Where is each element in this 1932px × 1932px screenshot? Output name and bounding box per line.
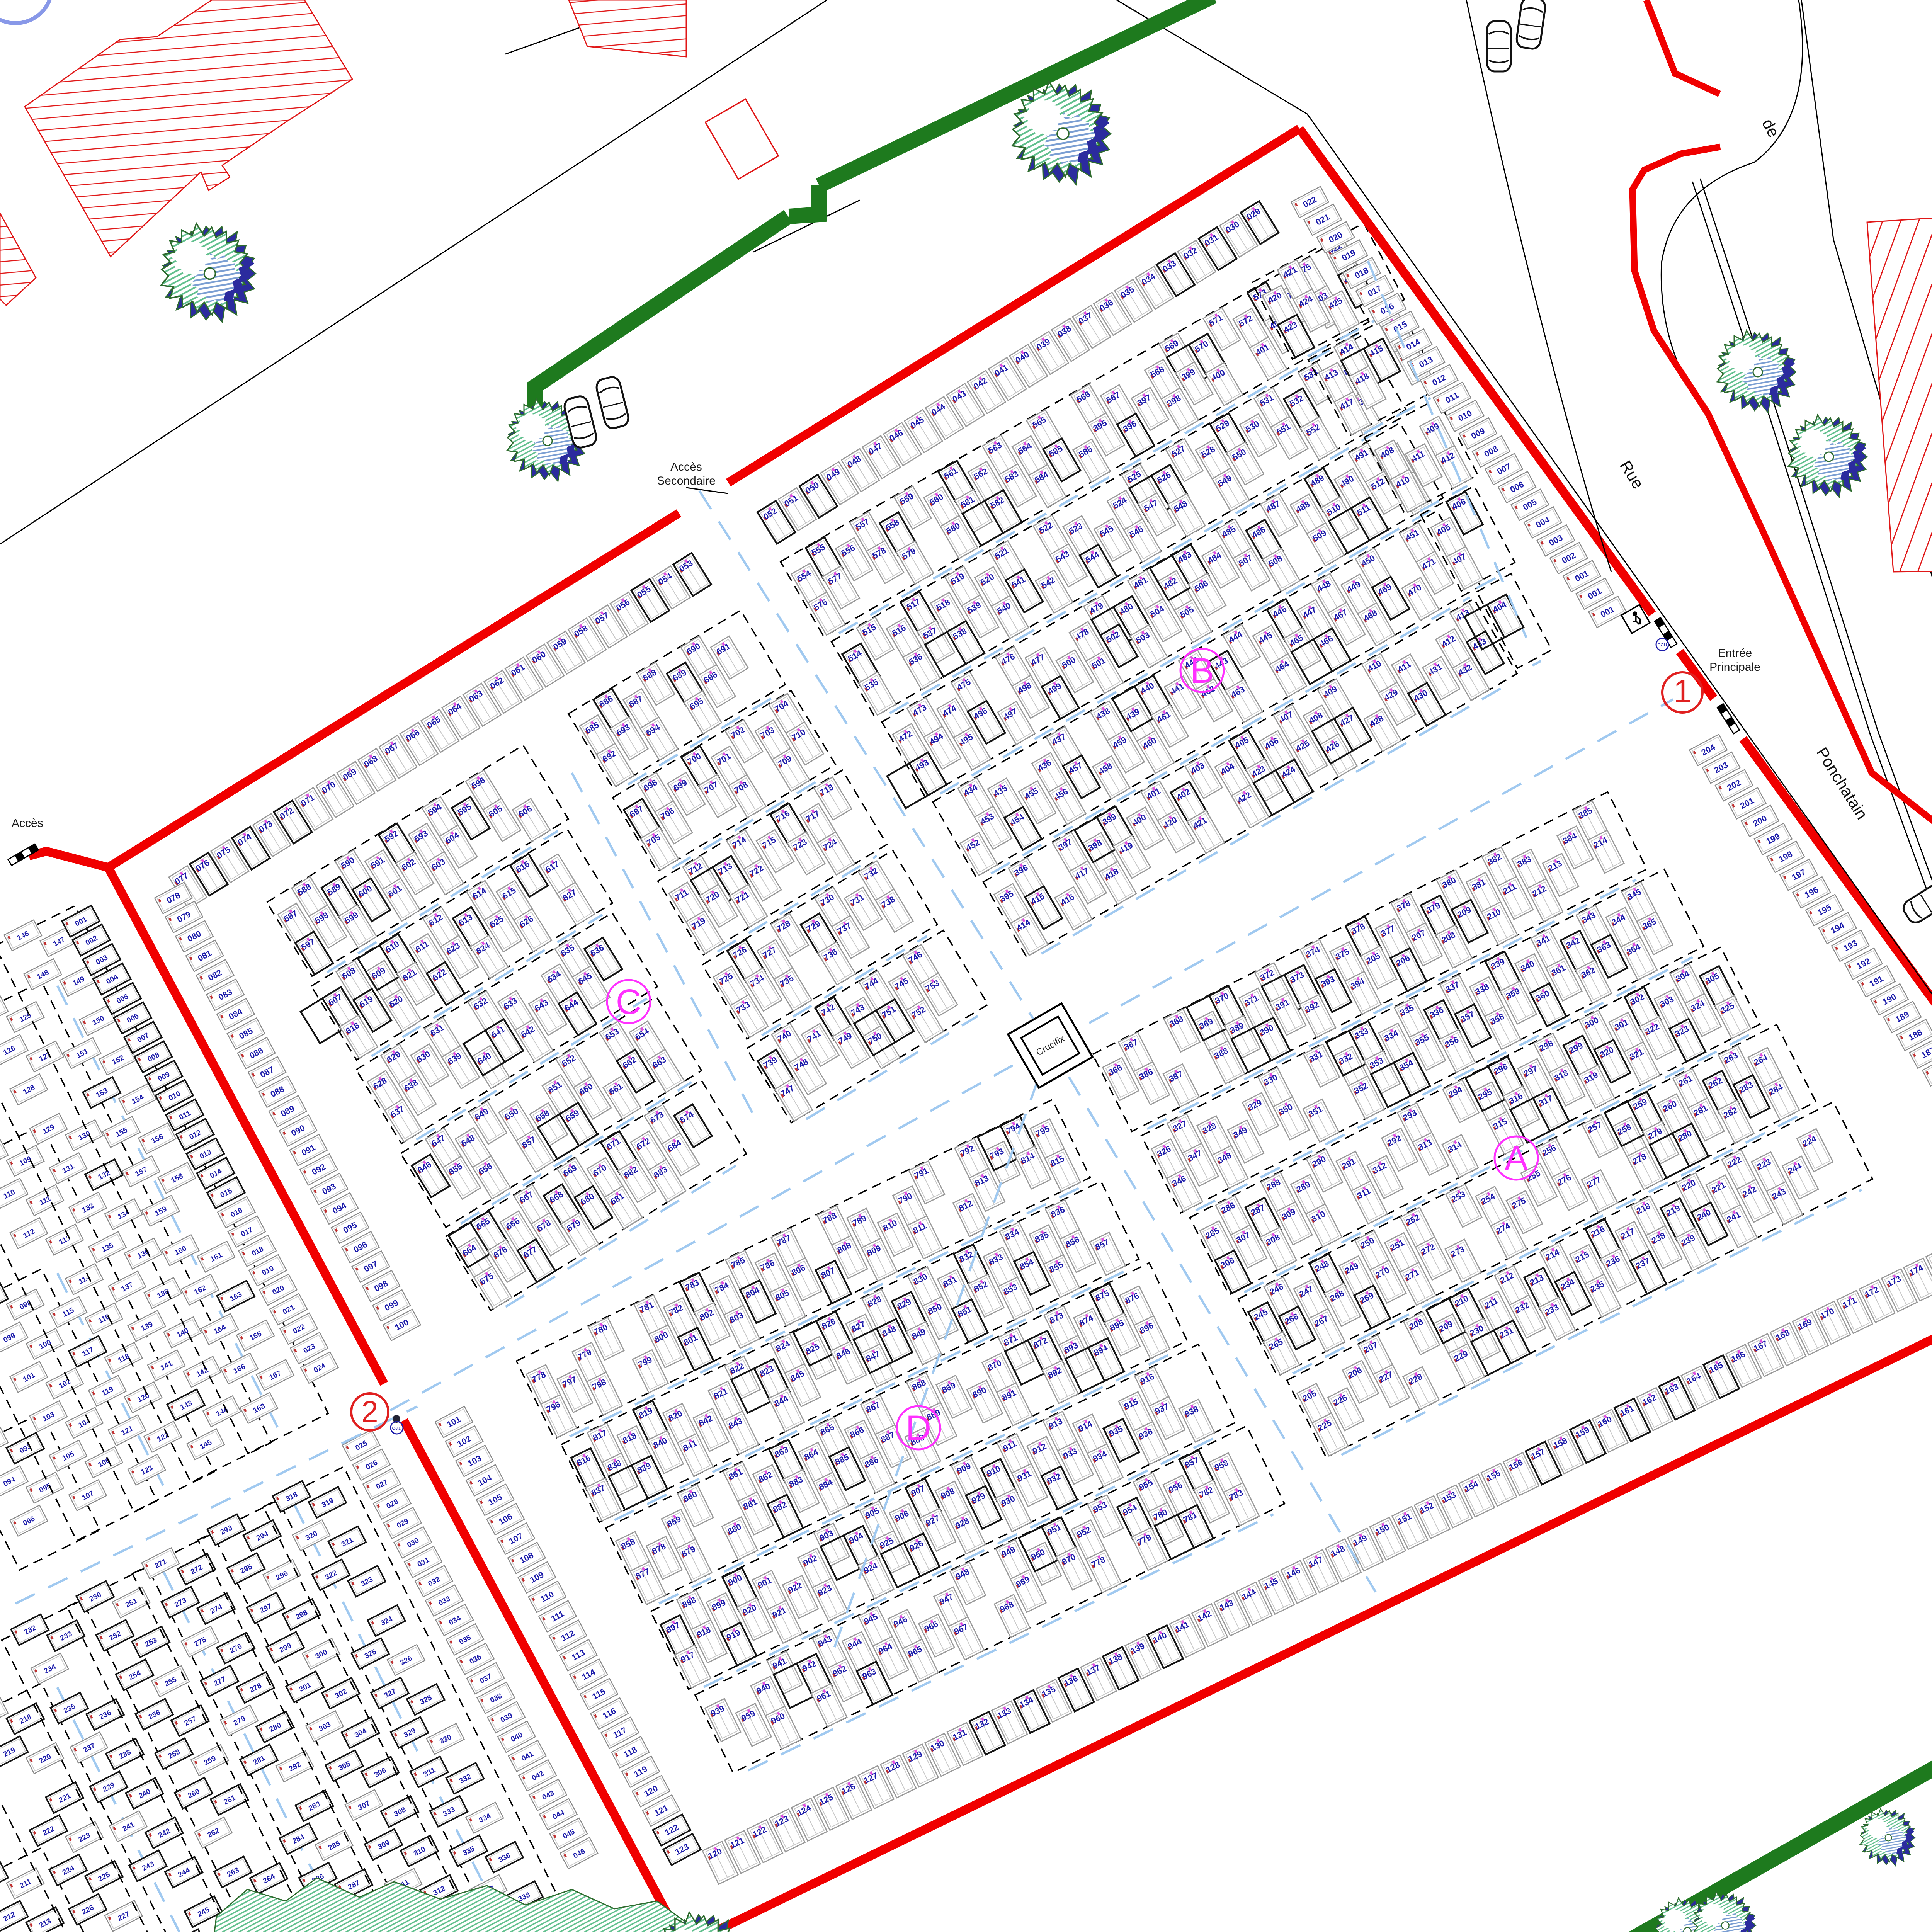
- svg-text:1: 1: [1673, 673, 1692, 709]
- svg-text:eau: eau: [392, 1425, 401, 1431]
- svg-text:2: 2: [361, 1395, 378, 1429]
- svg-text:Accès: Accès: [12, 817, 43, 830]
- svg-text:Entrée: Entrée: [1718, 647, 1752, 660]
- svg-text:Secondaire: Secondaire: [657, 474, 716, 487]
- svg-text:Accès: Accès: [670, 461, 702, 473]
- svg-text:Principale: Principale: [1709, 661, 1760, 673]
- svg-text:A: A: [1504, 1139, 1528, 1178]
- svg-text:B: B: [1190, 651, 1214, 690]
- svg-text:D: D: [906, 1408, 931, 1448]
- svg-text:C: C: [616, 982, 641, 1022]
- svg-text:eau: eau: [1657, 641, 1667, 648]
